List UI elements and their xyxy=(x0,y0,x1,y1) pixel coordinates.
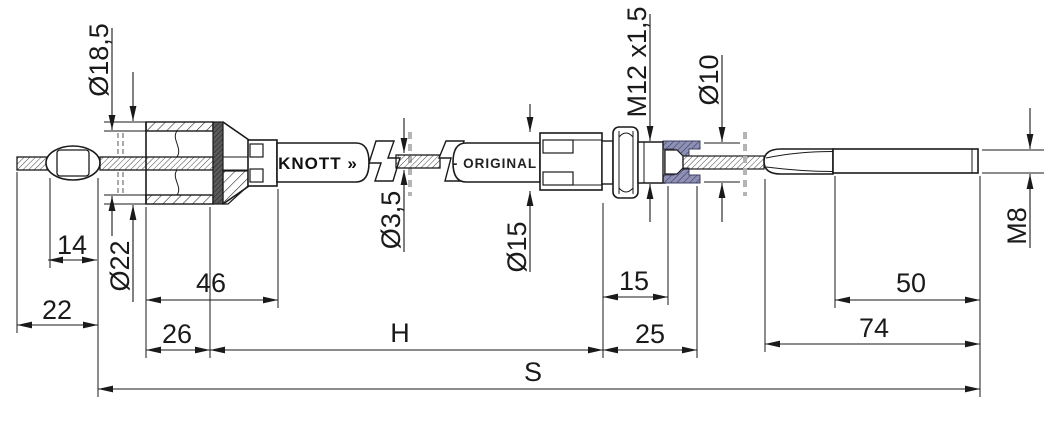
housing-cone xyxy=(223,122,250,204)
dia-10-label: Ø10 xyxy=(694,54,724,105)
dia-15-label: Ø15 xyxy=(502,221,532,272)
knott-sleeve: KNOTT » xyxy=(277,143,369,182)
m12-label: M12 x1,5 xyxy=(622,6,652,117)
dia-18-5-label: Ø18,5 xyxy=(84,23,114,97)
dim-46-label: 46 xyxy=(196,268,226,298)
dim-74-label: 74 xyxy=(859,313,889,343)
threaded-rod xyxy=(833,149,978,173)
washer-neck xyxy=(602,141,613,184)
technical-drawing-canvas: KNOTT » - ORIGINAL - xyxy=(0,0,1052,430)
dim-14-label: 14 xyxy=(57,230,87,260)
inner-cable-exposed xyxy=(396,132,440,196)
connector-piece xyxy=(248,140,277,186)
ferrule xyxy=(665,150,683,174)
original-sleeve: - ORIGINAL - xyxy=(453,143,547,182)
original-label: - ORIGINAL - xyxy=(453,156,547,171)
hex-nut xyxy=(613,127,638,198)
slotted-fitting xyxy=(540,133,602,190)
dia-3-5-label: Ø3,5 xyxy=(376,191,406,250)
dim-15-label: 15 xyxy=(619,266,649,296)
dim-25-label: 25 xyxy=(635,319,665,349)
crimp-fitting xyxy=(764,149,833,174)
m8-label: M8 xyxy=(1002,207,1032,245)
cable-segment-housing xyxy=(100,157,213,170)
cable-drawing: KNOTT » - ORIGINAL - xyxy=(0,0,1052,430)
dim-50-label: 50 xyxy=(896,268,926,298)
cable-segment-left xyxy=(17,157,50,170)
brand-label: KNOTT » xyxy=(278,154,358,173)
dim-S-label: S xyxy=(524,357,542,387)
cable-barrel-nipple xyxy=(46,146,100,180)
dim-H-label: H xyxy=(390,318,410,348)
housing-dark-insert xyxy=(213,122,223,204)
dia-22-label: Ø22 xyxy=(105,240,135,291)
dim-22-label: 22 xyxy=(42,295,72,325)
dim-26-label: 26 xyxy=(162,319,192,349)
threaded-collar xyxy=(638,142,665,183)
